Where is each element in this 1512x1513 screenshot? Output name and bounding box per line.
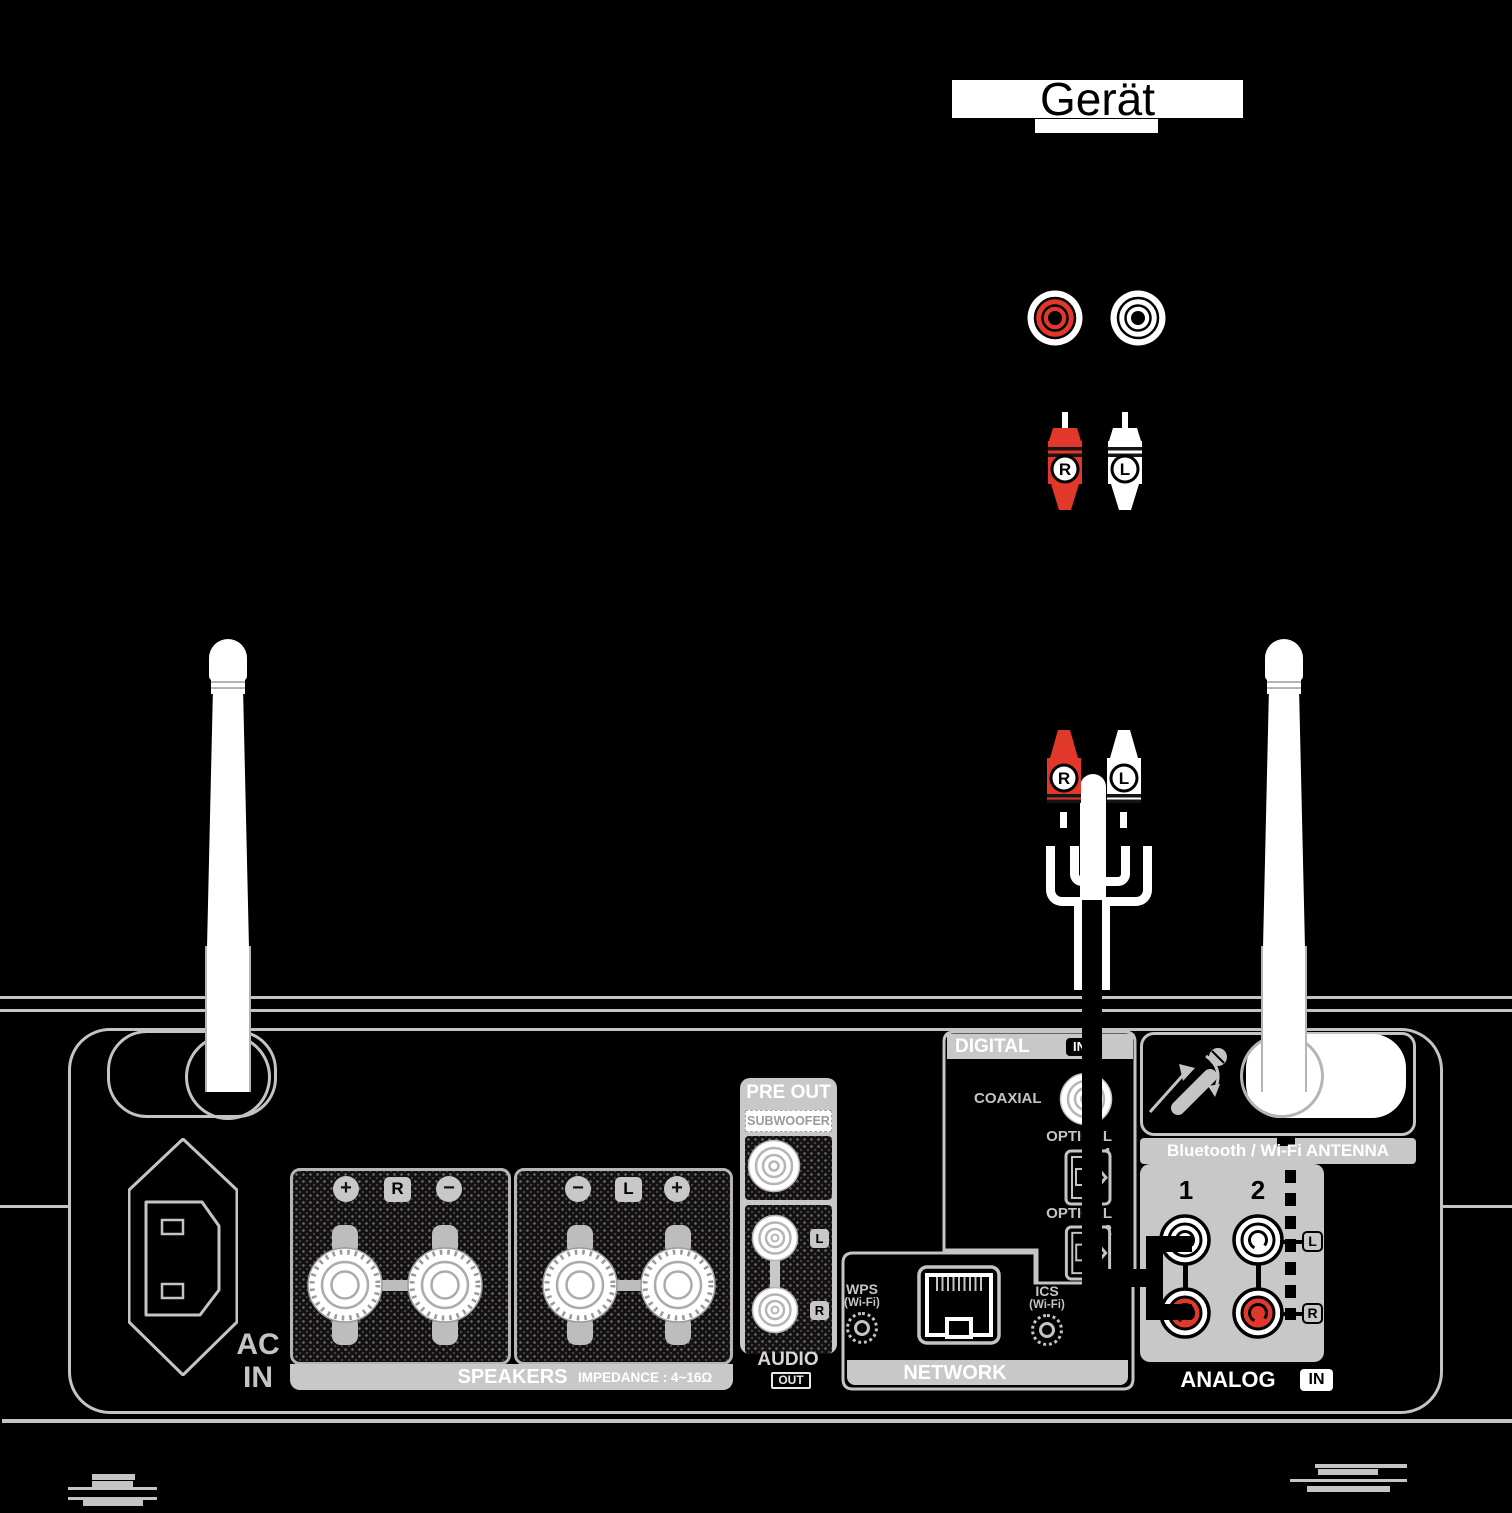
- antenna-left-neck-line: [211, 687, 245, 689]
- ac-inlet-icon[interactable]: [128, 1138, 238, 1376]
- rca-plug-red-down-icon: R: [1039, 728, 1089, 830]
- analog-r-badge: R: [1302, 1303, 1323, 1324]
- analog-r-connector: [1280, 1312, 1304, 1316]
- rca-plug-white-up-icon: L: [1100, 412, 1150, 512]
- audio-out-jack-l[interactable]: [750, 1213, 800, 1263]
- device-rca-output-jacks: [1020, 288, 1170, 348]
- foot-left: [68, 1487, 157, 1490]
- plug-letter: R: [1058, 769, 1070, 788]
- cable-core: [1082, 900, 1102, 1278]
- bt-wifi-label: Bluetooth / Wi-Fi ANTENNA: [1140, 1141, 1416, 1161]
- foot-right: [1307, 1486, 1390, 1492]
- antenna-left-tip: [209, 639, 247, 681]
- cable-stub-to-red-jack: [1146, 1304, 1192, 1320]
- speakers-title: SPEAKERS: [455, 1367, 570, 1387]
- binding-post[interactable]: [400, 1223, 490, 1347]
- side-seam-left: [0, 1205, 70, 1208]
- cable-fork-inner: [1070, 846, 1130, 886]
- analog-jack-2-red[interactable]: [1232, 1287, 1284, 1339]
- analog-num1: 1: [1174, 1176, 1198, 1204]
- speaker-right-label: R: [384, 1177, 411, 1202]
- ac-label-line2: IN: [226, 1361, 290, 1394]
- speaker-minus-left: −: [565, 1176, 591, 1202]
- chassis-bottom-line: [2, 1419, 1512, 1423]
- ics-button-center: [1039, 1322, 1055, 1338]
- network-title: NETWORK: [855, 1362, 1055, 1384]
- speaker-minus-right: −: [436, 1176, 462, 1202]
- analog-num2: 2: [1246, 1176, 1270, 1204]
- ics-sublabel: (Wi-Fi): [1019, 1299, 1075, 1312]
- binding-post[interactable]: [535, 1223, 625, 1347]
- antenna-right-neck-line: [1267, 687, 1301, 689]
- antenna-right-tip: [1265, 639, 1303, 681]
- foot-left: [83, 1500, 143, 1506]
- preout-r-label: R: [810, 1301, 829, 1320]
- device-bottom-strip: [1035, 119, 1158, 133]
- analog-l-connector: [1280, 1240, 1304, 1244]
- rca-plug-white-down-icon: L: [1099, 728, 1149, 830]
- antenna-rotate-icon: [1146, 1044, 1236, 1120]
- rca-jack-white-icon: [1111, 291, 1166, 346]
- speaker-plus-right: +: [333, 1176, 359, 1202]
- antenna-left-neck-line: [211, 681, 245, 683]
- foot-right: [1315, 1464, 1407, 1468]
- device-label: Gerät: [952, 76, 1243, 122]
- analog-in-badge: IN: [1300, 1369, 1333, 1391]
- rca-jack-red-icon: [1028, 291, 1083, 346]
- analog-l-badge: L: [1302, 1231, 1323, 1252]
- audio-label: AUDIO: [738, 1350, 838, 1370]
- antenna-left-shaft[interactable]: [207, 692, 249, 948]
- digital-title: DIGITAL: [955, 1037, 1055, 1057]
- plug-letter: L: [1119, 769, 1129, 788]
- antenna-left-shaft[interactable]: [205, 946, 251, 1092]
- binding-post[interactable]: [300, 1223, 390, 1347]
- plug-letter: L: [1120, 460, 1130, 479]
- cable-outline-left: [1074, 900, 1082, 990]
- speaker-left-label: L: [615, 1177, 642, 1202]
- side-seam-right: [1441, 1205, 1512, 1208]
- speakers-impedance: IMPEDANCE : 4~16Ω: [578, 1371, 730, 1386]
- analog-title: ANALOG: [1158, 1368, 1298, 1392]
- antenna-right-shaft[interactable]: [1263, 692, 1305, 948]
- foot-right: [1290, 1479, 1407, 1482]
- speaker-plus-left: +: [664, 1176, 690, 1202]
- coaxial-label: COAXIAL: [974, 1090, 1049, 1107]
- ics-label: ICS: [1019, 1284, 1075, 1299]
- wps-label: WPS: [834, 1282, 890, 1297]
- cable-stub-to-white-jack: [1146, 1236, 1192, 1252]
- foot-right: [1318, 1469, 1378, 1475]
- audio-out-jack-r[interactable]: [750, 1285, 800, 1335]
- wps-sublabel: (Wi-Fi): [834, 1297, 890, 1310]
- rca-plug-red-up-icon: R: [1040, 412, 1090, 512]
- ac-label-line1: AC: [226, 1328, 290, 1361]
- wps-button-center: [854, 1320, 870, 1336]
- audio-out-box: OUT: [771, 1372, 811, 1389]
- foot-left: [92, 1474, 135, 1480]
- subwoofer-jack[interactable]: [746, 1138, 802, 1194]
- connection-diagram: Gerät R L: [0, 0, 1512, 1513]
- preout-l-label: L: [810, 1229, 829, 1248]
- binding-post[interactable]: [633, 1223, 723, 1347]
- preout-title: PRE OUT: [740, 1083, 837, 1103]
- subwoofer-label: SUBWOOFER: [745, 1110, 832, 1132]
- antenna-right-neck-line: [1267, 681, 1301, 683]
- cable-outline-right: [1102, 900, 1110, 990]
- ac-in-label: AC IN: [226, 1328, 290, 1398]
- plug-letter: R: [1059, 460, 1071, 479]
- analog-dashed-line: [1285, 1170, 1296, 1320]
- analog-jack-2-white[interactable]: [1232, 1214, 1284, 1266]
- antenna-right-shaft[interactable]: [1261, 946, 1307, 1092]
